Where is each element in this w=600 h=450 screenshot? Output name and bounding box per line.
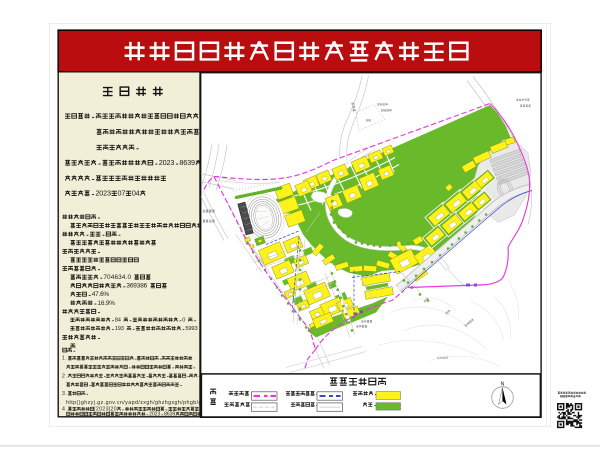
svg-text:3.: 3. xyxy=(62,391,68,397)
svg-text:1.: 1. xyxy=(62,356,68,362)
svg-text:04: 04 xyxy=(132,188,140,197)
svg-text:http()ghzyj.gz.gov.cn/yapd/zxg: http()ghzyj.gz.gov.cn/yapd/zxgh/ghzhgxgh… xyxy=(66,400,209,406)
svg-text:84: 84 xyxy=(115,317,121,323)
svg-text:2023: 2023 xyxy=(159,158,175,167)
svg-text:0: 0 xyxy=(182,317,185,323)
svg-text:369386: 369386 xyxy=(126,283,147,290)
svg-text:704634.0: 704634.0 xyxy=(103,274,131,281)
svg-text:16.9%: 16.9% xyxy=(98,300,116,307)
svg-text:07: 07 xyxy=(118,188,126,197)
svg-text:8639: 8639 xyxy=(179,158,195,167)
svg-text:193: 193 xyxy=(115,326,124,332)
svg-text:2.: 2. xyxy=(62,373,68,379)
svg-text:2023: 2023 xyxy=(149,412,160,418)
svg-text:47.6%: 47.6% xyxy=(92,291,110,298)
svg-text:[2023]20: [2023]20 xyxy=(94,407,117,413)
svg-text:8639: 8639 xyxy=(164,412,175,418)
svg-text:5993: 5993 xyxy=(185,326,197,332)
svg-text:4.: 4. xyxy=(62,407,68,413)
svg-text:2023: 2023 xyxy=(95,188,111,197)
svg-text:N: N xyxy=(501,381,505,387)
